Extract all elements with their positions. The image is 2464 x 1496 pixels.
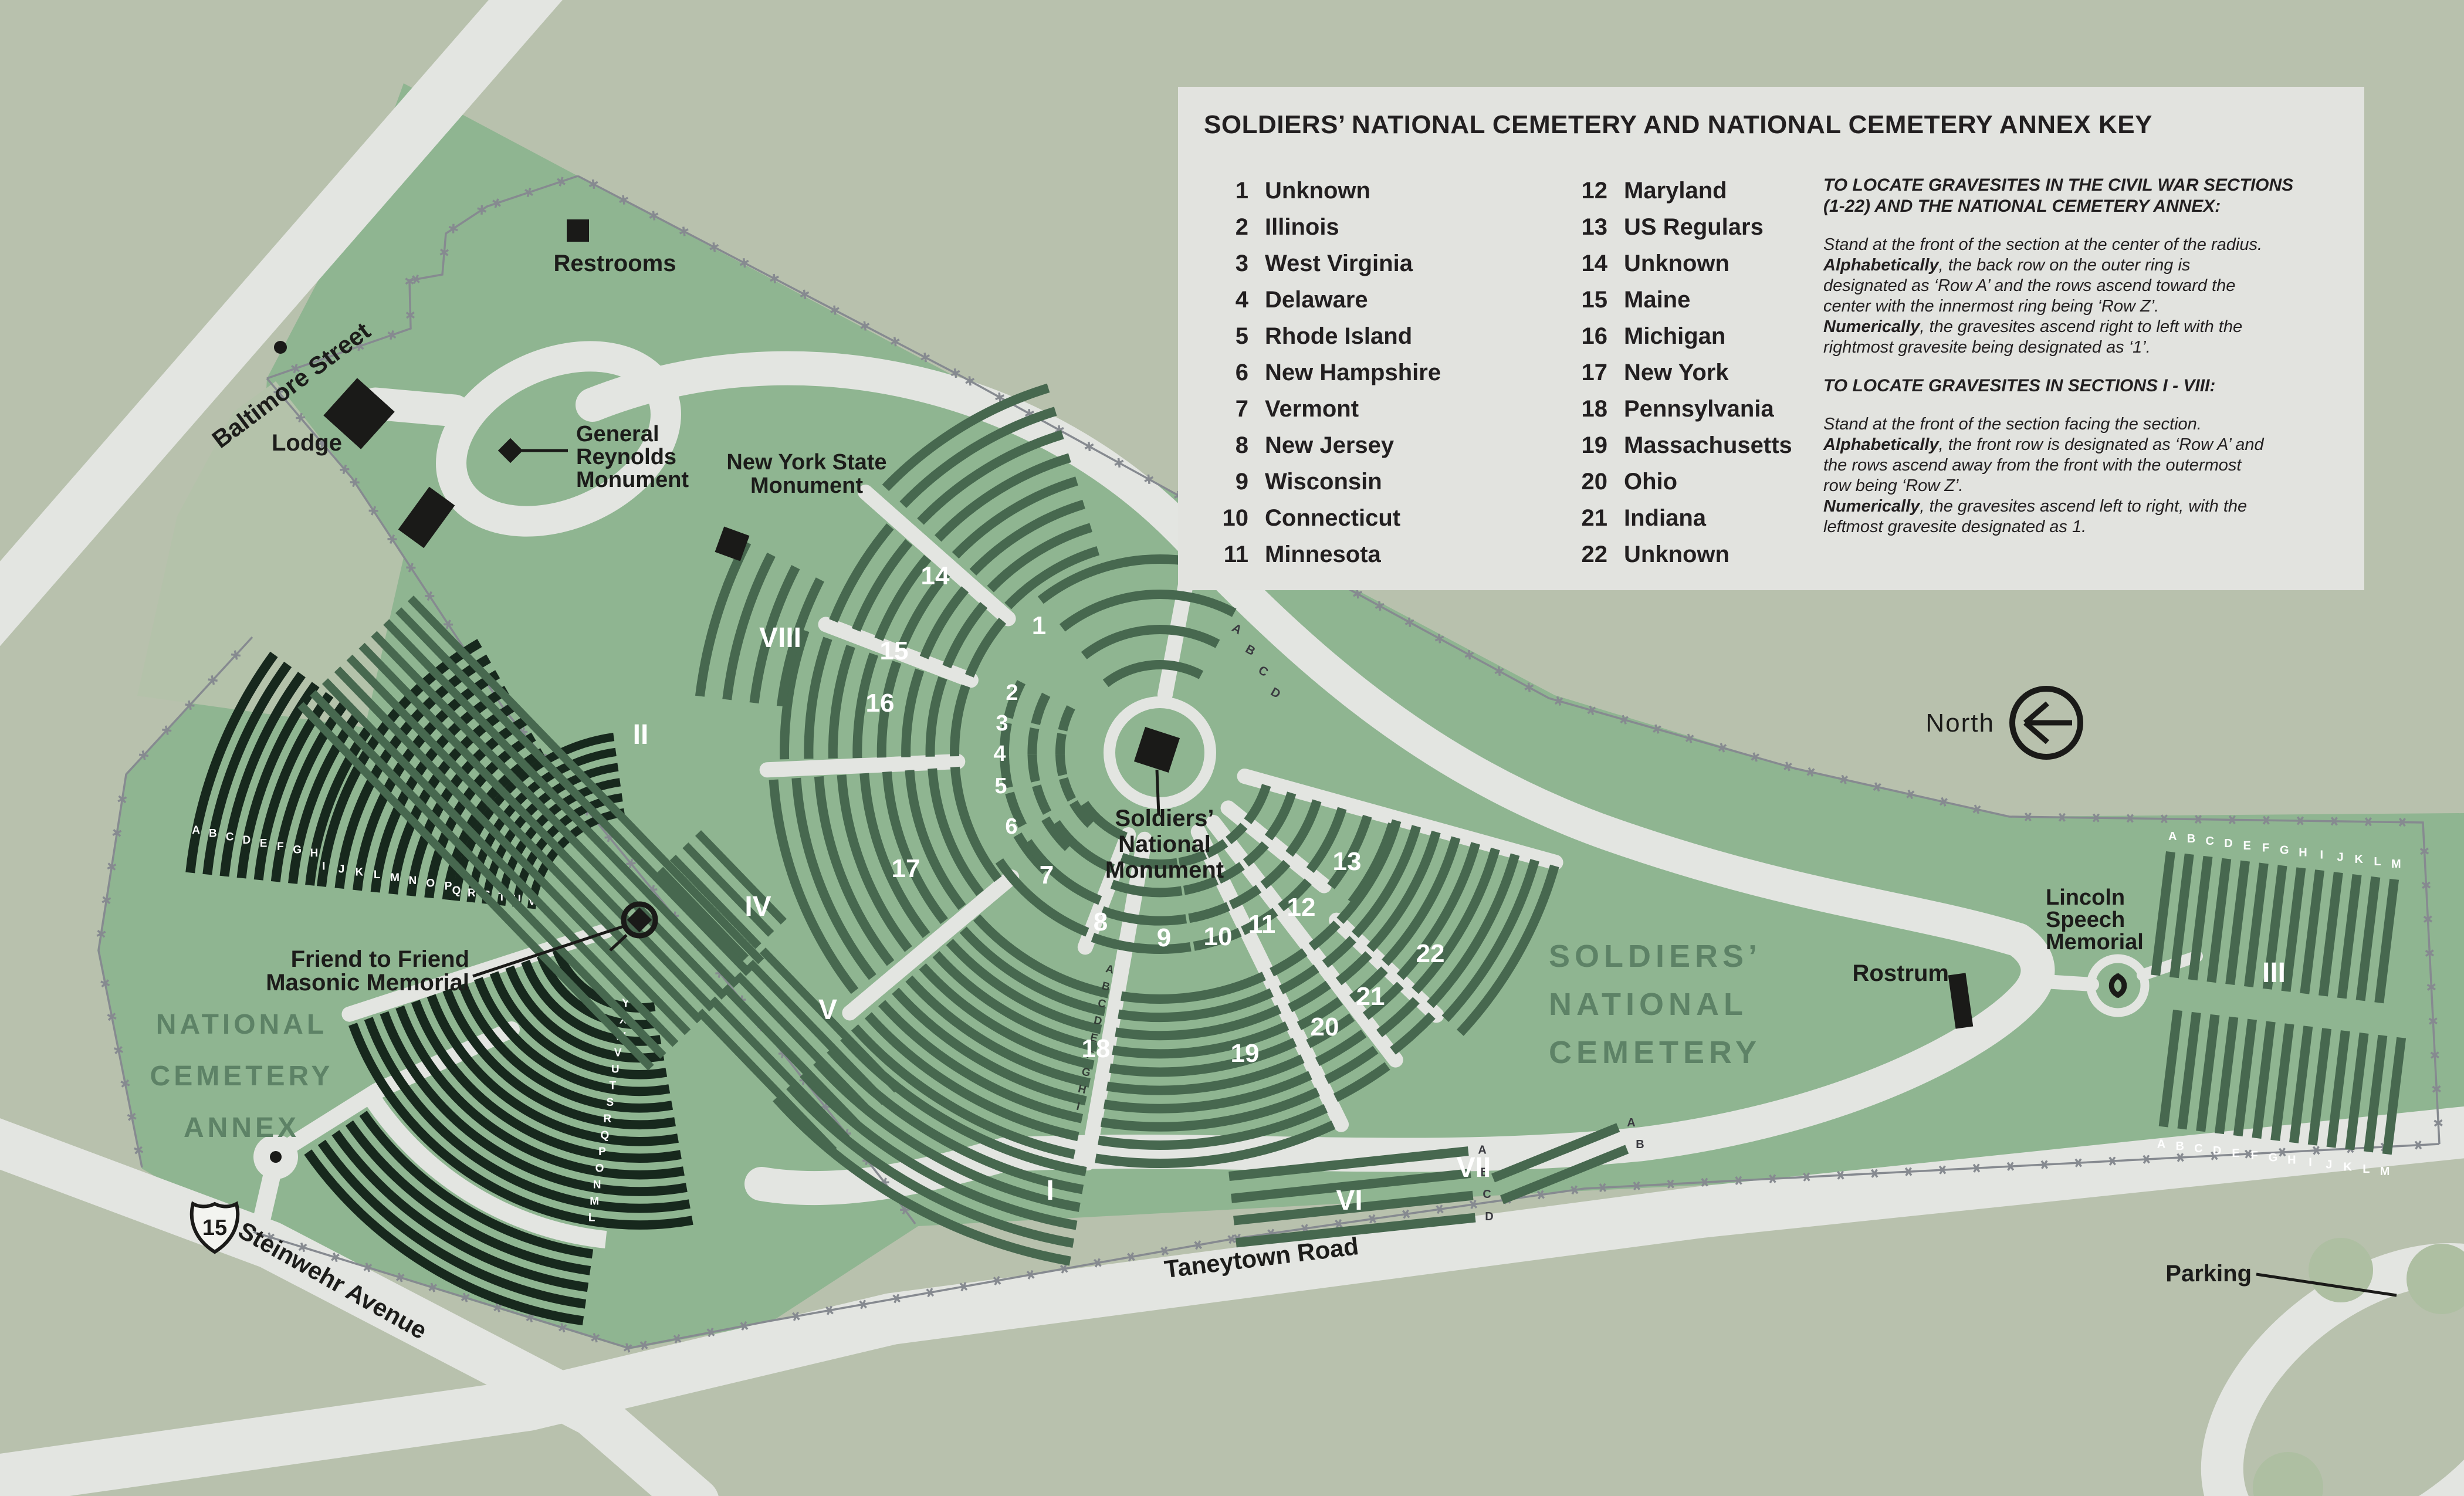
row-letter: K [356,866,364,878]
key-entry-2: 2Illinois [1213,209,1441,245]
row-letter: B [2176,1140,2184,1153]
row-letter: I [322,861,325,873]
section-label-14: 14 [921,561,950,590]
section-label-1: 1 [1032,611,1046,640]
key-entry-number: 2 [1213,214,1248,241]
section-label-2: 2 [1006,681,1018,705]
section-label-9: 9 [1157,923,1171,952]
section-label-15: 15 [880,637,909,665]
label-monument: Monument [576,468,689,492]
key-entry-number: 7 [1213,396,1248,422]
key-entry-4: 4Delaware [1213,282,1441,318]
row-letter: U [611,1064,620,1076]
key-entry-name: Ohio [1624,469,1677,495]
key-entry-name: Minnesota [1265,541,1381,568]
label-masonic-memorial: Masonic Memorial [266,970,469,996]
instructions-civil-war-line: designated as ‘Row A’ and the rows ascen… [1823,276,2351,296]
radial-path [767,761,958,770]
key-entry-number: 13 [1572,214,1607,241]
key-entry-number: 15 [1572,287,1607,313]
row-letter: F [277,841,284,853]
key-entry-number: 1 [1213,178,1248,204]
row-letter: M [2391,858,2401,871]
fence-tick [296,417,305,418]
map-key: SOLDIERS’ NATIONAL CEMETERY AND NATIONAL… [1178,87,2364,590]
grave-row [1033,755,1036,781]
key-entry-number: 5 [1213,323,1248,350]
key-entry-number: 17 [1572,360,1607,386]
key-entry-name: Unknown [1624,541,1729,568]
row-letter: L [2374,855,2381,868]
row-letter: M [390,872,400,884]
row-letter: L [374,869,381,881]
instructions-sections-i-viii-line: Alphabetically, the front row is designa… [1823,435,2351,455]
row-letter: O [595,1162,604,1175]
key-entry-16: 16Michigan [1572,318,1792,354]
key-entry-18: 18Pennsylvania [1572,391,1792,427]
row-letter: D [243,834,251,847]
key-entry-21: 21Indiana [1572,500,1792,536]
row-letter: H [2287,1154,2296,1167]
label-lodge: Lodge [272,430,342,456]
instructions-sections-i-viii-line: row being ‘Row Z’. [1823,476,2351,496]
label-monument: Monument [750,473,863,498]
label-cemetery: CEMETERY [150,1061,334,1092]
row-letter: B [2187,832,2195,845]
instructions-civil-war-line: center with the innermost ring being ‘Ro… [1823,296,2351,317]
key-entry-number: 11 [1213,541,1248,568]
key-entry-name: Maryland [1624,178,1727,204]
section-label-III: III [2262,957,2286,989]
key-entry-name: Delaware [1265,287,1368,313]
instructions-civil-war-line: Alphabetically, the back row on the oute… [1823,255,2351,276]
key-entry-name: Rhode Island [1265,323,1412,350]
row-letter: C [1483,1188,1491,1201]
row-letter: N [409,875,417,887]
row-letter: D [1485,1210,1493,1223]
path-road [2036,981,2092,984]
row-letter: N [593,1179,601,1191]
section-label-11: 11 [1248,910,1276,939]
section-label-19: 19 [1231,1039,1260,1068]
key-entry-number: 14 [1572,251,1607,277]
key-entry-12: 12Maryland [1572,172,1792,209]
section-label-8: 8 [1094,908,1108,936]
grave-row [1060,734,1062,754]
row-letter: J [2337,851,2343,864]
fence-tick [626,863,635,864]
row-letter: R [604,1113,612,1125]
key-entry-number: 18 [1572,396,1607,422]
grave-row [1139,919,1186,921]
instructions-sections-i-viii-line: the rows ascend away from the front with… [1823,455,2351,476]
row-letter: G [2280,844,2289,857]
row-letter: P [445,880,452,892]
key-entry-number: 22 [1572,541,1607,568]
section-label-3: 3 [996,711,1008,736]
instructions-sections-i-viii-line: leftmost gravesite designated as 1. [1823,517,2351,537]
row-letter: A [192,824,200,837]
key-list-1: 1Unknown2Illinois3West Virginia4Delaware… [1213,172,1441,573]
key-entry-name: New York [1624,360,1729,386]
row-letter: K [2355,853,2364,866]
key-entry-number: 16 [1572,323,1607,350]
key-entry-20: 20Ohio [1572,463,1792,500]
label-speech: Speech [2046,908,2125,932]
key-entry-17: 17New York [1572,354,1792,391]
section-label-17: 17 [892,854,920,883]
label-monument: Monument [1105,857,1224,883]
key-entry-number: 21 [1572,505,1607,532]
label-general: General [576,422,659,446]
map-dot [274,341,287,354]
section-label-VI: VI [1336,1185,1362,1216]
row-letter: G [293,844,302,857]
row-letter: C [2194,1142,2202,1155]
instructions-civil-war-line: rightmost gravesite being designated as … [1823,337,2351,358]
label-rostrum: Rostrum [1853,960,1949,986]
row-letter: S [606,1096,614,1109]
key-entry-number: 6 [1213,360,1248,386]
row-letter: B [209,828,217,840]
instructions-sections-i-viii-line: Numerically, the gravesites ascend left … [1823,496,2351,517]
key-entry-19: 19Massachusetts [1572,427,1792,463]
section-label-21: 21 [1356,982,1385,1011]
row-letter: Q [601,1129,610,1142]
key-entry-number: 10 [1213,505,1248,532]
section-label-7: 7 [1040,861,1054,889]
instructions-sections-i-viii-heading: TO LOCATE GRAVESITES IN SECTIONS I - VII… [1823,375,2351,397]
row-letter: L [2363,1163,2370,1176]
section-label-4: 4 [993,742,1006,766]
key-entry-name: Unknown [1265,178,1370,204]
label-cemetery: CEMETERY [1549,1035,1761,1070]
grave-row [1143,891,1182,892]
key-entry-6: 6New Hampshire [1213,354,1441,391]
section-label-22: 22 [1416,939,1445,968]
key-entry-11: 11Minnesota [1213,536,1441,573]
row-letter: Q [452,885,461,897]
key-entry-name: West Virginia [1265,251,1413,277]
key-entry-name: Indiana [1624,505,1706,532]
label-lincoln: Lincoln [2046,885,2125,910]
row-letter: V [614,1047,622,1059]
section-label-6: 6 [1005,814,1017,839]
label-north: North [1925,709,1995,737]
row-letter: I [2309,1156,2312,1169]
map-page: HGFEDCBAPONMLKJIVUTSRQYXWVUTSRQPONMLABCD… [0,0,2464,1496]
row-letter: L [588,1212,595,1224]
key-entry-name: Pennsylvania [1624,396,1774,422]
label-15: 15 [202,1216,227,1240]
key-entry-name: Michigan [1624,323,1725,350]
label-national: NATIONAL [1549,987,1748,1022]
label-national: National [1118,831,1211,857]
section-label-I: I [1046,1175,1054,1206]
row-letter: A [2168,830,2177,843]
key-entry-22: 22Unknown [1572,536,1792,573]
key-entry-name: Vermont [1265,396,1359,422]
instructions-civil-war-heading: (1-22) AND THE NATIONAL CEMETERY ANNEX: [1823,196,2351,217]
key-entry-name: Massachusetts [1624,432,1792,459]
row-letter: J [2326,1158,2332,1171]
row-letter: E [2243,840,2251,852]
label-friend-to-friend: Friend to Friend [291,946,469,972]
key-entry-5: 5Rhode Island [1213,318,1441,354]
key-entry-3: 3West Virginia [1213,245,1441,282]
label-national: NATIONAL [156,1009,327,1040]
section-label-20: 20 [1311,1013,1339,1041]
key-entry-14: 14Unknown [1572,245,1792,282]
row-letter: H [310,847,319,859]
instructions-sections-i-viii-line: Stand at the front of the section facing… [1823,414,2351,435]
key-entry-number: 9 [1213,469,1248,495]
grave-row [1060,754,1062,775]
key-entry-10: 10Connecticut [1213,500,1441,536]
key-instructions: TO LOCATE GRAVESITES IN THE CIVIL WAR SE… [1823,175,2351,555]
row-letter: P [598,1146,606,1158]
section-label-12: 12 [1287,893,1316,922]
section-label-VIII: VIII [759,622,801,654]
key-entry-number: 3 [1213,251,1248,277]
section-label-10: 10 [1204,922,1233,951]
key-entry-name: US Regulars [1624,214,1764,241]
map-dot [270,1151,282,1163]
key-entry-7: 7Vermont [1213,391,1441,427]
key-entry-name: Maine [1624,287,1690,313]
label-restrooms: Restrooms [554,251,676,276]
restrooms-building [567,219,589,242]
key-entry-name: Illinois [1265,214,1339,241]
grave-row [1032,729,1034,755]
key-entry-name: Connecticut [1265,505,1400,532]
key-entry-8: 8New Jersey [1213,427,1441,463]
row-letter: B [1636,1138,1644,1151]
label-new-york-state: New York State [726,450,886,475]
key-entry-number: 4 [1213,287,1248,313]
label-memorial: Memorial [2046,930,2144,955]
row-letter: H [2299,846,2307,859]
row-letter: O [426,878,435,890]
label-parking: Parking [2165,1261,2252,1287]
row-letter: E [260,837,268,849]
key-entry-name: Wisconsin [1265,469,1382,495]
key-entry-name: New Hampshire [1265,360,1441,386]
row-letter: A [1627,1116,1635,1129]
key-title: SOLDIERS’ NATIONAL CEMETERY AND NATIONAL… [1204,110,2152,140]
row-letter: C [226,831,234,843]
label-reynolds: Reynolds [576,445,676,469]
section-label-16: 16 [866,689,895,717]
row-letter: E [2232,1147,2239,1160]
key-entry-number: 19 [1572,432,1607,459]
key-entry-number: 20 [1572,469,1607,495]
fence-tick [821,1106,830,1107]
row-letter: K [2343,1160,2352,1173]
section-label-IV: IV [744,891,771,922]
row-letter: G [2269,1152,2278,1165]
instructions-civil-war-line: Numerically, the gravesites ascend right… [1823,317,2351,337]
row-letter: M [2380,1165,2390,1178]
key-entry-13: 13US Regulars [1572,209,1792,245]
row-letter: C [2205,835,2213,848]
label-soldiers-: SOLDIERS’ [1549,939,1762,974]
row-letter: M [590,1195,599,1207]
key-list-2: 12Maryland13US Regulars14Unknown15Maine1… [1572,172,1792,573]
key-entry-1: 1Unknown [1213,172,1441,209]
section-label-5: 5 [994,774,1007,798]
section-label-VII: VII [1457,1152,1491,1183]
key-entry-number: 12 [1572,178,1607,204]
instructions-civil-war-line: Stand at the front of the section at the… [1823,235,2351,255]
key-entry-number: 8 [1213,432,1248,459]
row-letter: D [2213,1145,2221,1157]
section-label-V: V [818,994,837,1025]
fence-tick [340,469,349,470]
section-label-18: 18 [1082,1034,1111,1063]
instructions-civil-war-heading: TO LOCATE GRAVESITES IN THE CIVIL WAR SE… [1823,175,2351,196]
section-label-13: 13 [1333,847,1362,876]
tree-blob [2309,1238,2373,1302]
key-entry-name: Unknown [1624,251,1729,277]
row-letter: F [2251,1149,2258,1162]
row-letter: D [2224,837,2232,850]
row-letter: I [2320,848,2323,861]
label-annex: ANNEX [184,1112,300,1143]
section-label-II: II [633,719,649,750]
key-entry-15: 15Maine [1572,282,1792,318]
key-entry-name: New Jersey [1265,432,1394,459]
key-entry-9: 9Wisconsin [1213,463,1441,500]
row-letter: J [339,864,345,876]
row-letter: T [609,1080,616,1092]
label-soldiers-: Soldiers’ [1115,805,1214,831]
row-letter: F [2262,842,2269,855]
row-letter: A [2157,1138,2165,1150]
